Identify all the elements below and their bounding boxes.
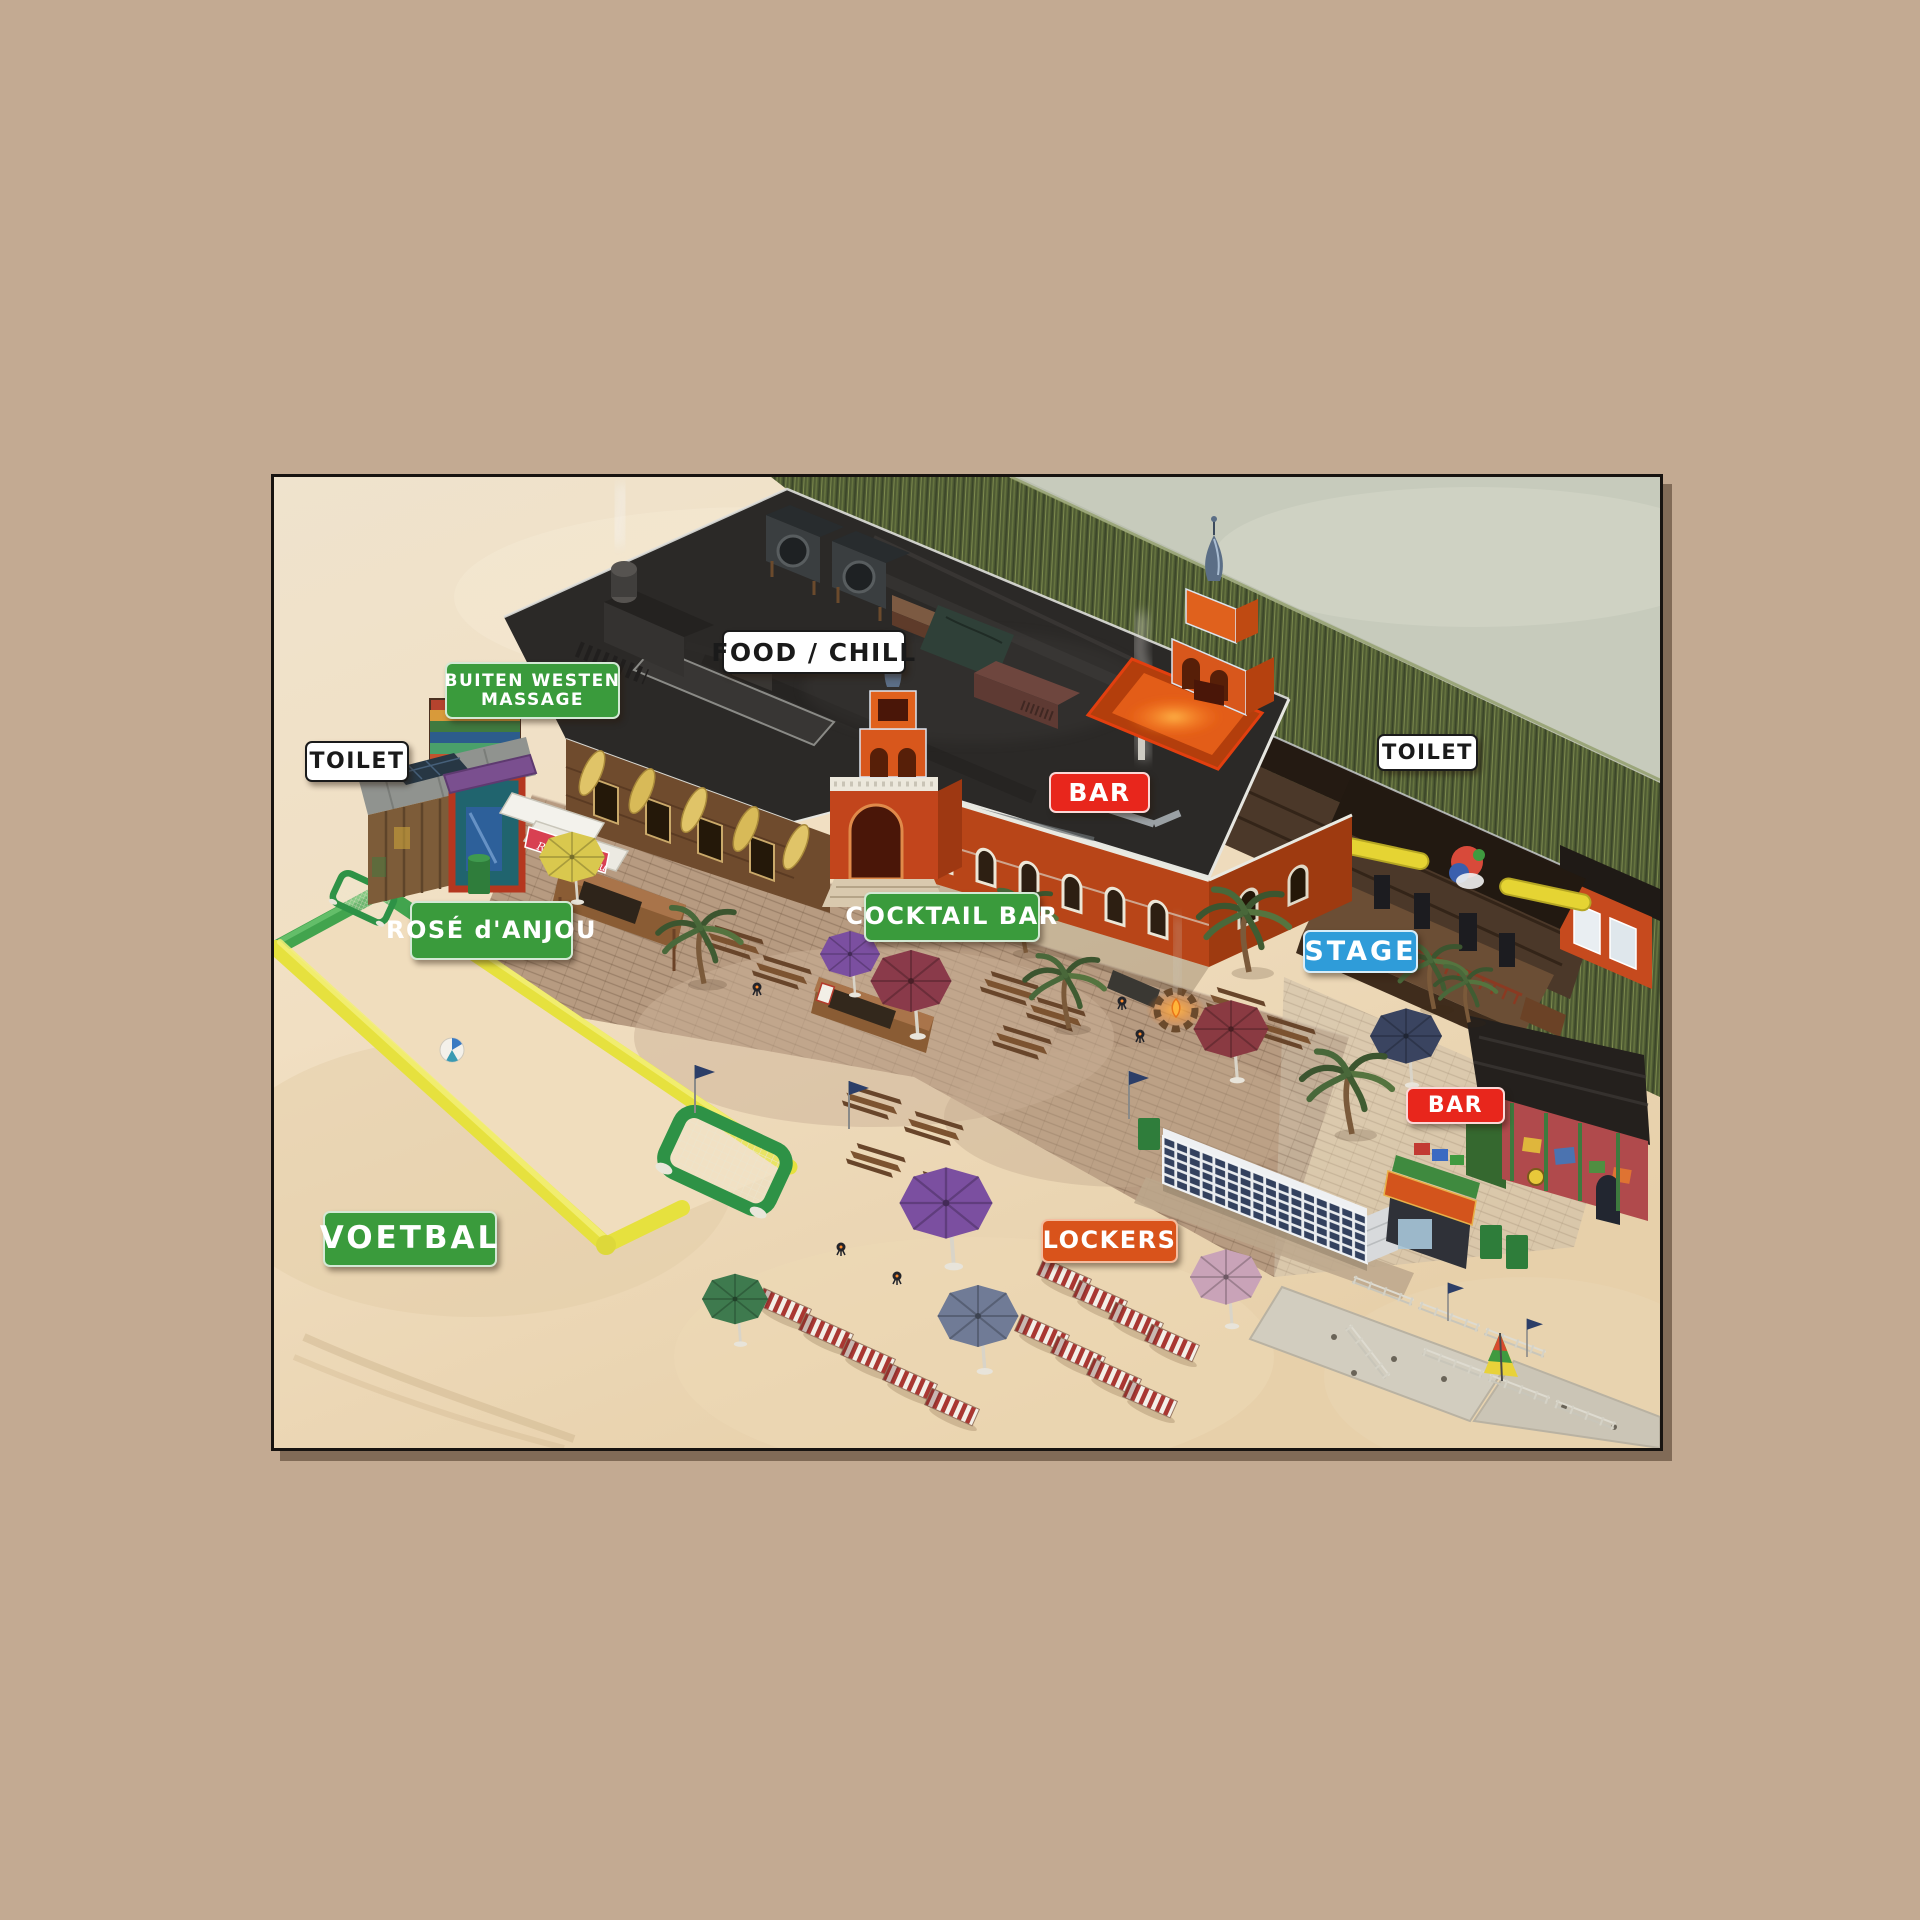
trash-bin-green [1138, 1118, 1160, 1150]
trash-bin [468, 858, 490, 894]
festival-map: Rosé d'Anjou [271, 474, 1663, 1451]
label-bar-roof: BAR [1049, 772, 1150, 813]
label-stage: STAGE [1303, 930, 1418, 973]
label-food-chill: FOOD / CHILL [722, 630, 906, 674]
label-voetbal: VOETBAL [323, 1211, 497, 1267]
map-scene: Rosé d'Anjou [274, 477, 1660, 1448]
label-lockers: LOCKERS [1041, 1219, 1178, 1263]
label-bar-entrance: BAR [1406, 1087, 1505, 1124]
label-massage-line1: BUITEN WESTEN [445, 672, 621, 690]
label-rose-danjou: ROSÉ d'ANJOU [410, 901, 573, 960]
page-background: Rosé d'Anjou [0, 0, 1920, 1920]
label-massage-line2: MASSAGE [481, 691, 584, 709]
label-toilet-left: TOILET [305, 741, 409, 782]
label-toilet-right: TOILET [1377, 734, 1478, 771]
label-cocktail-bar: COCKTAIL BAR [864, 892, 1040, 942]
label-massage: BUITEN WESTEN MASSAGE [445, 662, 620, 719]
